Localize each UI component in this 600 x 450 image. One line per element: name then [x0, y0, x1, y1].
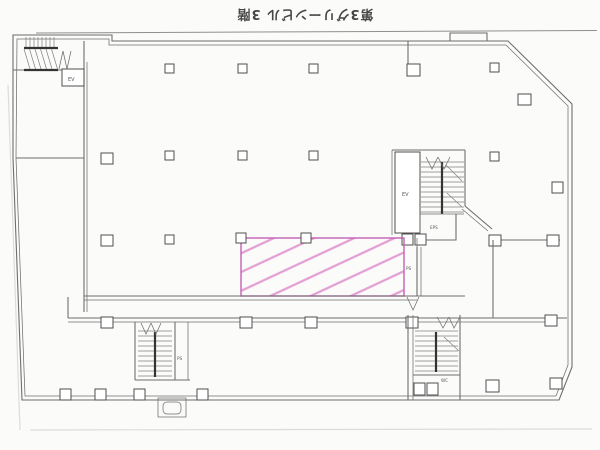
column [490, 63, 499, 72]
scan-artifacts [8, 31, 597, 431]
column [486, 380, 499, 392]
diagonal-wall-inner [462, 209, 488, 231]
outer-walls [13, 33, 572, 400]
left-wing: EV [13, 41, 87, 312]
scanned-floor-plan-page: 第3グリーンビル 3階 EV [0, 0, 600, 450]
stair-diagonal [46, 49, 52, 69]
column [165, 151, 174, 160]
column [301, 233, 311, 243]
wall-pilaster [547, 235, 559, 246]
outer-wall-outline [13, 35, 572, 400]
wall-stub [134, 389, 145, 400]
label-elevator-upper-left: EV [68, 77, 75, 83]
wall-pilaster [101, 235, 113, 246]
floor-plan-drawing: EV [0, 0, 600, 450]
scan-edge-bottom [30, 429, 592, 430]
wall-stub [95, 389, 106, 400]
column [309, 151, 318, 160]
staircase-lower-left: PS [135, 322, 190, 417]
outer-wall-inner-line [16, 39, 568, 396]
top-wall-jog [450, 33, 487, 41]
wall-pilaster [489, 235, 501, 246]
chamfer-pilaster [518, 94, 531, 105]
wall-pilaster [101, 153, 113, 164]
stair-diagonal [24, 49, 30, 69]
stair-up-arrow [446, 165, 462, 181]
title-underline [36, 31, 597, 34]
stair-diagonal [52, 49, 58, 69]
label-restroom-lower-right: WC [441, 378, 448, 383]
label-pipe-shaft-center: PS [406, 266, 412, 271]
stair-diagonal [30, 49, 36, 69]
label-core-room: EPS [430, 225, 438, 230]
wall-stub [305, 317, 317, 328]
top-wall-duct [407, 41, 420, 76]
highlighted-unit: PS [236, 233, 419, 310]
column [309, 64, 318, 73]
wall-stub [545, 315, 557, 326]
stair-up-arrow [447, 193, 462, 207]
column-grid [101, 63, 563, 246]
fixture [414, 383, 425, 395]
south-walls [68, 296, 567, 328]
label-elevator-core: EV [402, 192, 409, 198]
bottom-wall-columns [60, 378, 562, 400]
duct-box [407, 64, 420, 76]
door-swing-mark [407, 297, 419, 310]
column [238, 64, 247, 73]
staircase-upper-left [24, 37, 71, 70]
scan-edge-left [8, 85, 20, 430]
column [236, 233, 246, 243]
door-swing-marks [141, 323, 161, 334]
door-swing-marks [437, 317, 460, 328]
column [165, 64, 174, 73]
wall-stub [197, 389, 208, 400]
fixture [427, 383, 438, 395]
stair-diagonal [41, 49, 47, 69]
column [165, 235, 174, 244]
stair-diagonal [35, 49, 41, 69]
door-swing-marks [59, 51, 71, 69]
wall-stub [240, 317, 252, 328]
wall-pilaster [552, 182, 563, 193]
stair-up-arrow [444, 337, 459, 351]
column [490, 152, 499, 161]
diagonal-wall [465, 206, 492, 229]
label-pipe-shaft-lower-left: PS [177, 356, 183, 361]
column [238, 151, 247, 160]
wall-stub [101, 317, 113, 328]
fixture [163, 402, 181, 414]
wall-stub [60, 389, 71, 400]
wall-stub [550, 378, 562, 389]
highlighted-unit-area [241, 238, 404, 296]
